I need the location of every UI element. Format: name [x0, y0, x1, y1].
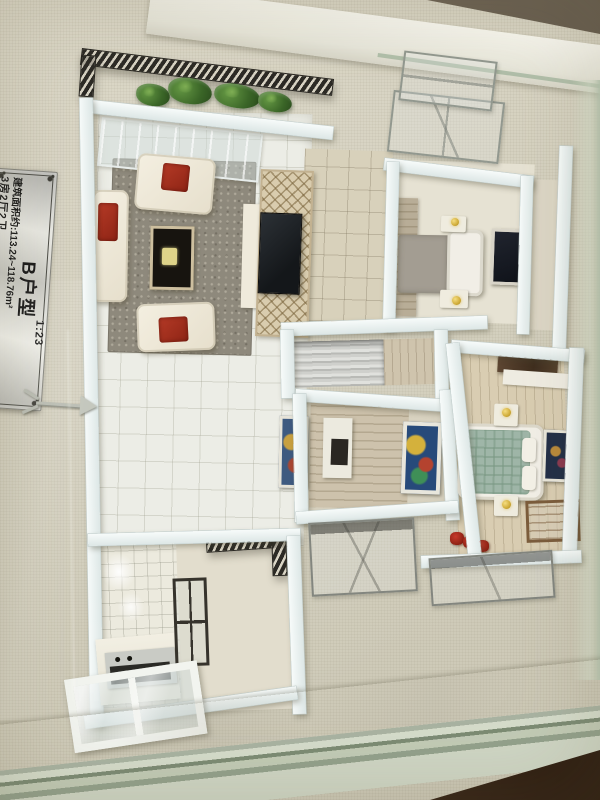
balcony-railing-return	[79, 55, 97, 98]
stove-knob-2	[127, 656, 132, 661]
tv-screen	[258, 212, 303, 294]
north-arrow-icon	[19, 385, 103, 425]
coffee-table-gold-item	[162, 248, 177, 265]
bedroom2-bed-headboard	[446, 230, 483, 297]
bay-window-below-study	[308, 517, 418, 596]
wall-mid-left-stub	[280, 330, 294, 398]
bath-tile-wall	[383, 338, 438, 385]
sofa-bottom-red-cushion	[158, 316, 188, 342]
plaque-corner-flourish	[45, 174, 55, 184]
north-arrow-fletch-2	[22, 405, 39, 415]
master-pillow-1	[522, 438, 537, 462]
sofa-top-red-cushion	[161, 163, 191, 193]
wall-study-left	[293, 394, 308, 522]
kitchen-dark-window	[172, 577, 209, 666]
study-desk-dark-object	[331, 439, 349, 466]
showroom-model-photo: 1:23 B户型 建筑面积约:113.24~118.76m² 3房2厅2卫	[0, 0, 600, 800]
mirror-panel	[281, 339, 384, 388]
north-arrow-head	[79, 395, 97, 416]
north-arrow-fletch-1	[23, 389, 39, 401]
master-lamp-bottom	[502, 500, 511, 509]
bay-window-below-master	[428, 550, 555, 607]
master-red-flowers-1	[450, 532, 464, 545]
master-pillow-2	[522, 466, 537, 490]
master-lamp-top	[502, 408, 511, 417]
bedroom2-lamp-top	[451, 218, 459, 226]
bedroom2-lamp-bottom	[452, 296, 461, 305]
bathroom-mirror-cabinet	[281, 338, 438, 388]
north-arrow-shaft	[36, 401, 82, 408]
sofa-left-red-cushion	[98, 203, 119, 241]
stove-knob-1	[115, 657, 120, 662]
study-painting	[401, 421, 442, 494]
kitchen-side-railing-return	[271, 540, 287, 577]
coffee-table	[149, 226, 194, 291]
bedroom2-bed-duvet	[397, 235, 452, 294]
